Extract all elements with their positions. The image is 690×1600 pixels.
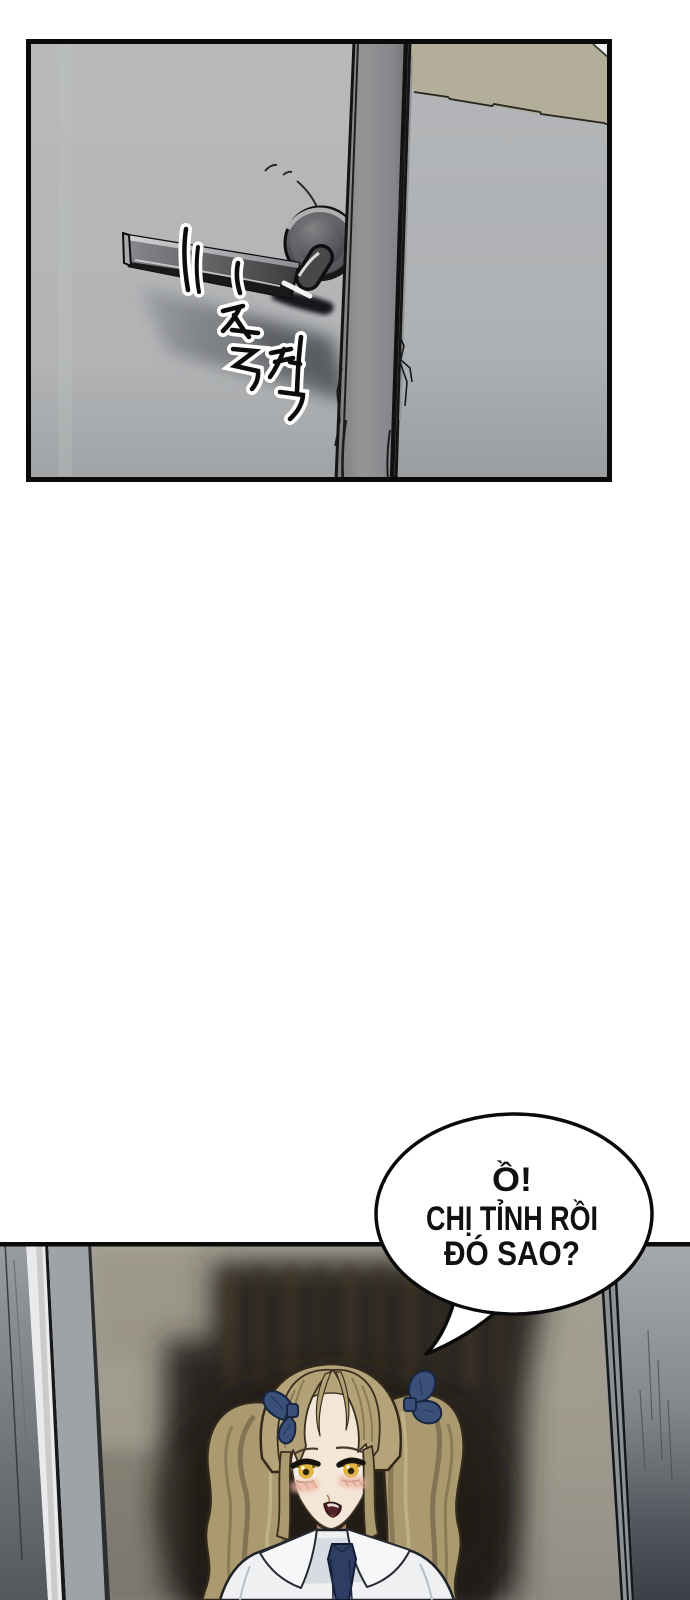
svg-text:CHỊ TỈNH RỒI: CHỊ TỈNH RỒI bbox=[426, 1200, 598, 1238]
svg-text:Ồ!: Ồ! bbox=[492, 1161, 532, 1199]
svg-text:ĐÓ SAO?: ĐÓ SAO? bbox=[444, 1235, 580, 1273]
